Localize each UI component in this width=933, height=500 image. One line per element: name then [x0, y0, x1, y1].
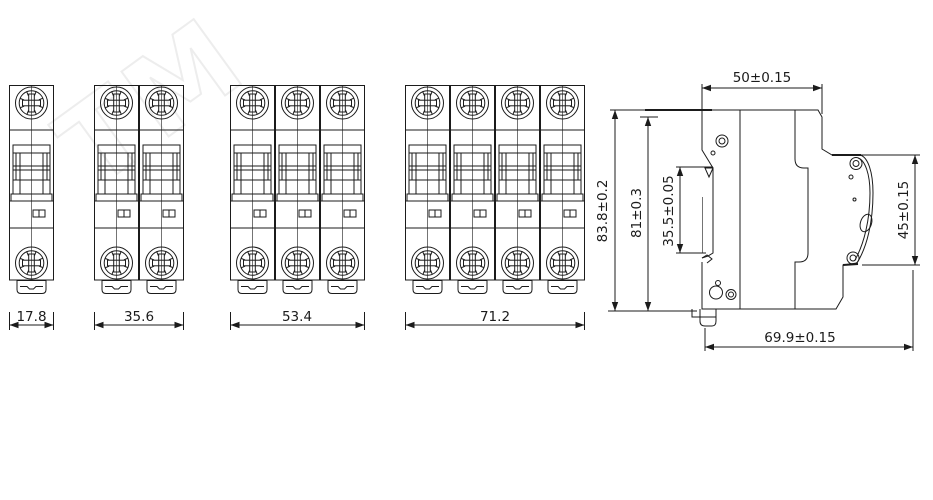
- dimension-label-top-width: 50±0.15: [733, 70, 792, 86]
- dimension-label-width-3pole: 53.4: [282, 309, 312, 325]
- front-view-3-pole: 53.4: [231, 86, 365, 331]
- dimension-din-slot: 35.5±0.05: [661, 167, 713, 253]
- housing-rivets: [710, 135, 875, 300]
- drawing-canvas: TM 17.8 35.6: [0, 0, 933, 500]
- dimension-label-body-height: 81±0.3: [629, 188, 645, 238]
- width-dimension-3-pole: 53.4: [231, 309, 365, 330]
- dimension-label-din-slot: 35.5±0.05: [661, 175, 677, 246]
- dimension-label-width-1pole: 17.8: [16, 309, 46, 325]
- dimension-top-width: 50±0.15: [702, 70, 822, 114]
- dimension-label-overall-height: 83.8±0.2: [595, 180, 611, 243]
- dimension-label-width-4pole: 71.2: [480, 309, 510, 325]
- technical-drawing: TM 17.8 35.6: [0, 0, 933, 500]
- width-dimension-4-pole: 71.2: [406, 309, 585, 330]
- dimension-label-overall-depth: 69.9±0.15: [764, 330, 835, 346]
- front-view-4-pole: 71.2: [406, 86, 585, 331]
- inner-step-contour: [795, 110, 808, 309]
- width-dimension-1-pole: 17.8: [10, 309, 54, 330]
- dimension-body-height: 81±0.3: [629, 117, 658, 311]
- dimension-front-height: 45±0.15: [861, 155, 920, 265]
- dimension-label-width-2pole: 35.6: [124, 309, 154, 325]
- dimension-label-front-height: 45±0.15: [896, 181, 912, 240]
- dimension-overall-depth: 69.9±0.15: [705, 270, 913, 351]
- side-view: 50±0.15 83.8±0.2 81±0.3 35.5±0.05: [595, 70, 920, 351]
- width-dimension-2-pole: 35.6: [95, 309, 184, 330]
